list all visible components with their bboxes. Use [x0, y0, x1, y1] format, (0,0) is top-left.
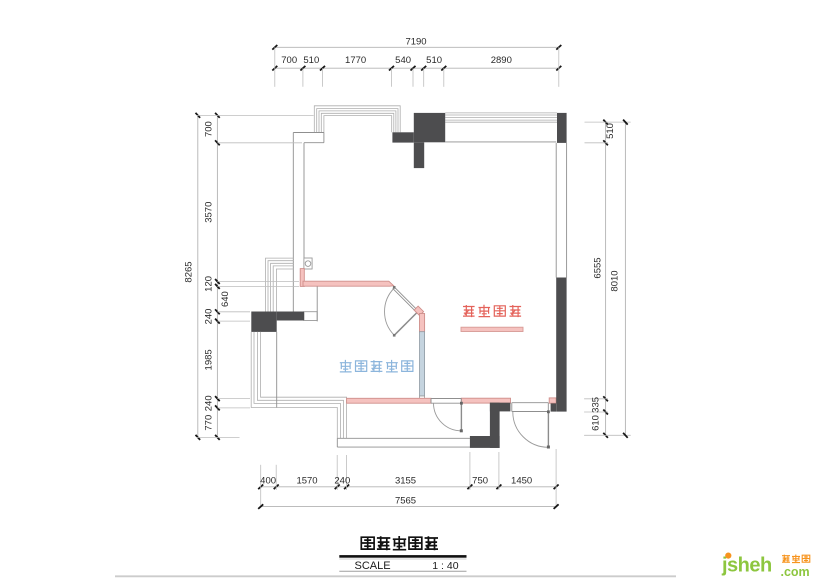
svg-text:1450: 1450 [511, 475, 532, 486]
svg-text:1985: 1985 [204, 349, 215, 370]
svg-text:335: 335 [591, 397, 602, 413]
svg-text:540: 540 [395, 55, 411, 66]
svg-text:240: 240 [204, 309, 215, 325]
svg-text:510: 510 [605, 123, 616, 139]
svg-text:8265: 8265 [184, 261, 195, 282]
svg-text:3155: 3155 [395, 475, 416, 486]
svg-text:7565: 7565 [395, 496, 416, 507]
svg-text:2890: 2890 [491, 55, 512, 66]
svg-text:240: 240 [204, 395, 215, 411]
svg-text:6555: 6555 [593, 257, 604, 278]
svg-text:.com: .com [781, 565, 810, 579]
svg-text:240: 240 [334, 475, 350, 486]
svg-text:1570: 1570 [296, 475, 317, 486]
svg-text:610: 610 [591, 415, 602, 431]
svg-text:510: 510 [303, 55, 319, 66]
svg-text:SCALE: SCALE [355, 560, 391, 572]
svg-text:700: 700 [281, 55, 297, 66]
svg-text:3570: 3570 [204, 202, 215, 223]
svg-text:400: 400 [260, 475, 276, 486]
svg-text:510: 510 [426, 55, 442, 66]
svg-text:1 : 40: 1 : 40 [432, 560, 458, 572]
svg-text:1770: 1770 [345, 55, 366, 66]
svg-text:750: 750 [472, 475, 488, 486]
svg-text:640: 640 [220, 291, 231, 307]
svg-text:8010: 8010 [610, 270, 621, 291]
svg-text:700: 700 [204, 121, 215, 137]
svg-text:770: 770 [204, 415, 215, 431]
svg-text:120: 120 [204, 276, 215, 292]
svg-text:7190: 7190 [405, 37, 426, 48]
